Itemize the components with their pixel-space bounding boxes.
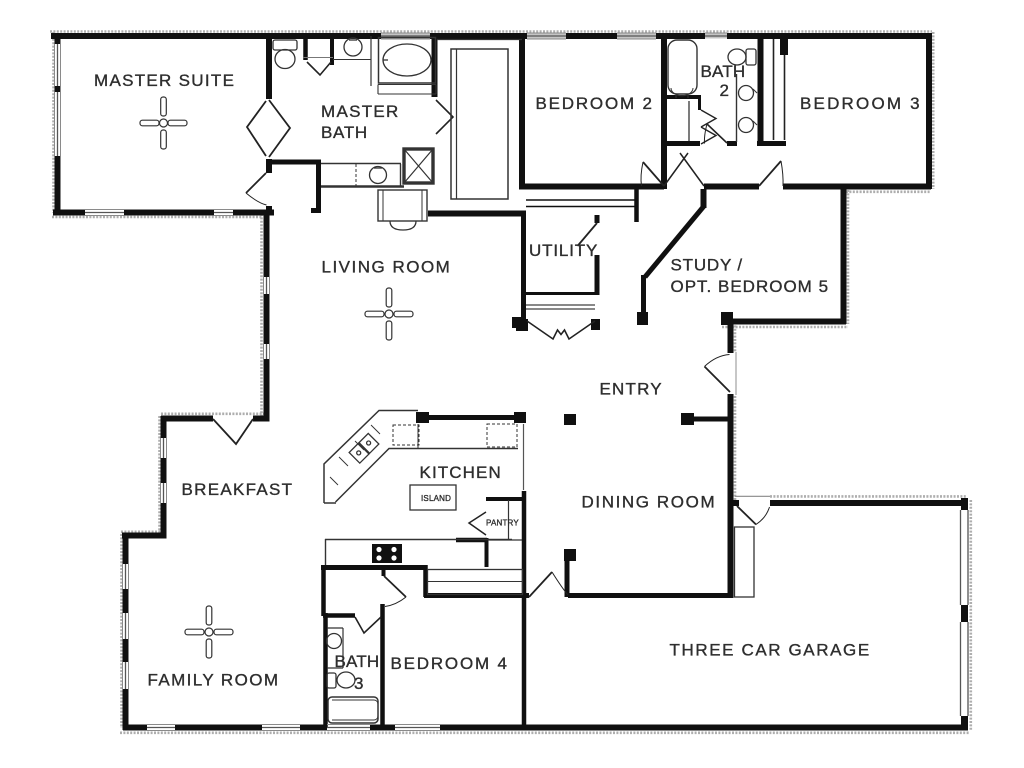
svg-text:BATH: BATH xyxy=(321,123,368,142)
svg-text:KITCHEN: KITCHEN xyxy=(420,463,502,482)
svg-text:2: 2 xyxy=(720,81,731,100)
svg-text:3: 3 xyxy=(354,674,365,693)
svg-text:BEDROOM 2: BEDROOM 2 xyxy=(536,94,654,113)
svg-text:ENTRY: ENTRY xyxy=(600,380,663,399)
svg-text:MASTER: MASTER xyxy=(321,102,400,121)
svg-text:UTILITY: UTILITY xyxy=(529,241,598,260)
svg-text:LIVING ROOM: LIVING ROOM xyxy=(322,258,452,277)
svg-text:BATH: BATH xyxy=(701,62,746,81)
svg-text:BEDROOM 3: BEDROOM 3 xyxy=(800,94,922,113)
svg-text:PANTRY: PANTRY xyxy=(486,519,519,528)
svg-text:MASTER SUITE: MASTER SUITE xyxy=(94,71,235,90)
svg-text:FAMILY ROOM: FAMILY ROOM xyxy=(148,671,280,690)
svg-text:BREAKFAST: BREAKFAST xyxy=(182,480,294,499)
svg-text:OPT. BEDROOM 5: OPT. BEDROOM 5 xyxy=(671,277,830,296)
svg-text:BEDROOM 4: BEDROOM 4 xyxy=(391,654,509,673)
svg-text:STUDY /: STUDY / xyxy=(671,256,743,275)
svg-text:BATH: BATH xyxy=(335,652,380,671)
svg-text:THREE CAR GARAGE: THREE CAR GARAGE xyxy=(670,641,871,660)
svg-text:ISLAND: ISLAND xyxy=(421,494,451,503)
svg-text:DINING ROOM: DINING ROOM xyxy=(582,493,717,512)
